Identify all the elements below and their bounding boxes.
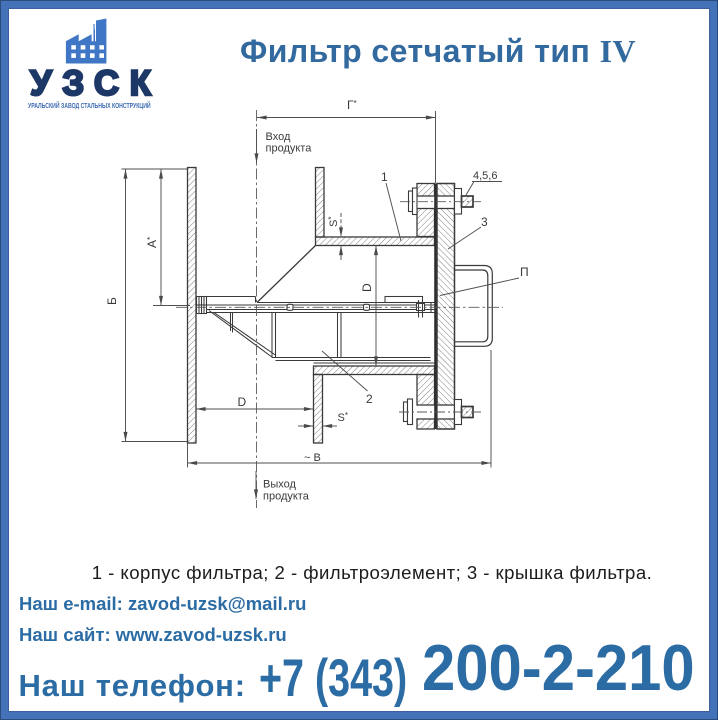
svg-text:D: D: [360, 283, 374, 292]
svg-text:Г*: Г*: [347, 98, 357, 112]
svg-text:Вход: Вход: [266, 131, 291, 143]
svg-text:~ В: ~ В: [304, 452, 321, 464]
svg-text:П: П: [520, 265, 529, 279]
svg-text:А*: А*: [145, 237, 159, 248]
svg-text:4,5,6: 4,5,6: [473, 170, 497, 182]
svg-text:Выход: Выход: [263, 479, 296, 491]
svg-text:Б: Б: [105, 297, 119, 305]
svg-text:2: 2: [366, 392, 373, 406]
svg-text:продукта: продукта: [263, 491, 310, 503]
svg-text:продукта: продукта: [266, 143, 313, 155]
svg-text:S*: S*: [327, 217, 340, 227]
svg-text:3: 3: [481, 215, 488, 229]
svg-text:1: 1: [381, 170, 388, 184]
svg-text:D: D: [238, 395, 247, 409]
svg-text:S*: S*: [338, 411, 348, 424]
